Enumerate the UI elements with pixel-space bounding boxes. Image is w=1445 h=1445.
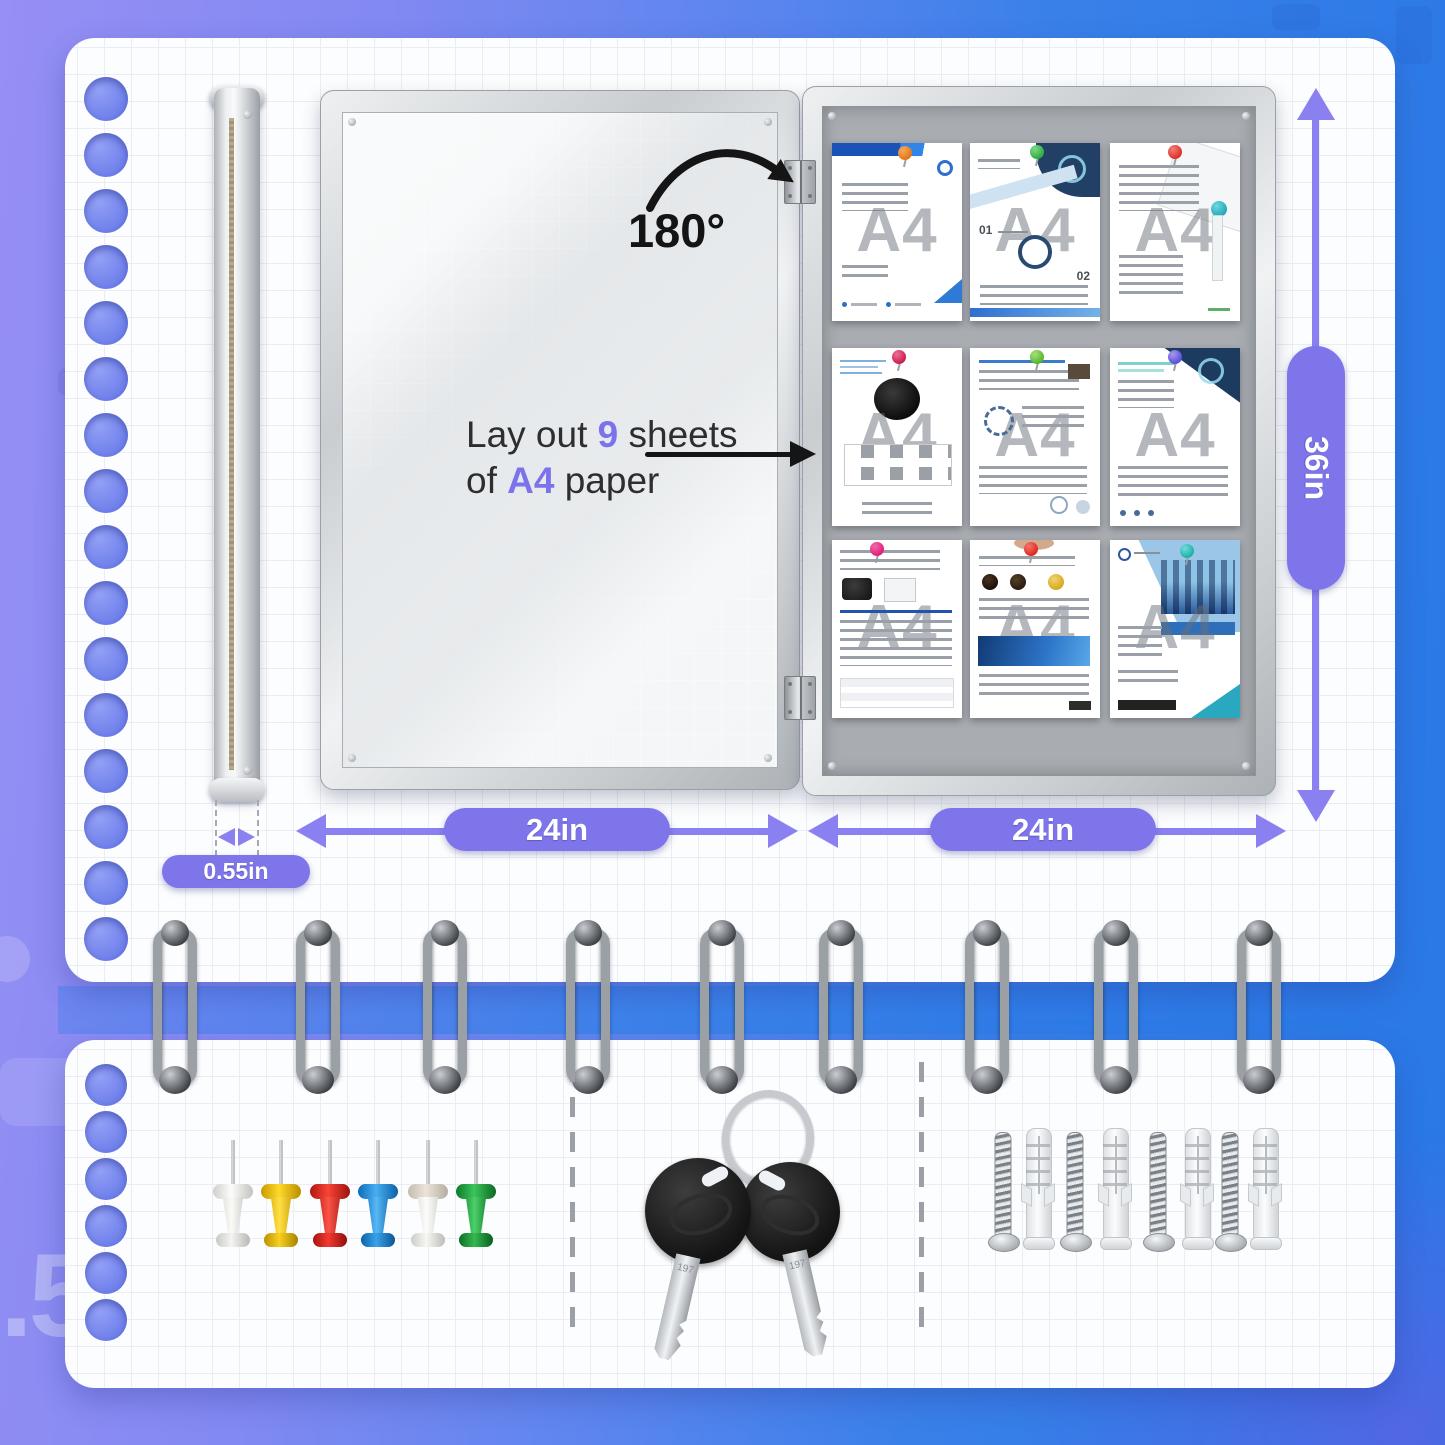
doc-decor xyxy=(1050,496,1068,514)
punched-hole xyxy=(84,189,128,233)
doc-decor xyxy=(840,372,882,374)
note-text: Lay out 9 sheets of A4 paper xyxy=(466,412,738,504)
hinge-icon xyxy=(784,676,816,720)
pushpin xyxy=(454,1140,498,1248)
doc-decor xyxy=(1118,700,1176,710)
wall-anchor xyxy=(1250,1128,1280,1254)
infographic-stage: .5 0.55in xyxy=(0,0,1445,1445)
doc-decor xyxy=(840,620,952,666)
doc-decor xyxy=(979,674,1089,696)
doc-decor xyxy=(840,610,952,613)
doc-decor xyxy=(1022,406,1084,432)
pushpin-icon xyxy=(1168,145,1182,167)
doc-decor xyxy=(978,159,1020,169)
doc-decor xyxy=(832,143,962,156)
height-arrow-icon xyxy=(1297,790,1335,822)
wall-anchor xyxy=(1182,1128,1212,1254)
doc-decor xyxy=(844,444,952,486)
backdrop-smudge xyxy=(1272,4,1320,30)
doc-decor xyxy=(842,302,847,307)
curved-arrow-icon xyxy=(640,136,795,216)
punched-hole xyxy=(84,413,128,457)
a4-sheet: A4 xyxy=(832,348,962,526)
doc-decor xyxy=(979,360,1065,363)
punched-hole xyxy=(84,581,128,625)
pushpin-icon xyxy=(1168,350,1182,372)
a4-sheet: A4 xyxy=(832,143,962,321)
doc-decor xyxy=(1069,701,1091,710)
a4-sheet: A4 xyxy=(970,540,1100,718)
doc-decor xyxy=(937,160,953,176)
punched-hole xyxy=(84,77,128,121)
a4-watermark: A4 xyxy=(1110,400,1240,471)
doc-decor xyxy=(1118,670,1178,688)
screw-icon xyxy=(1242,112,1250,120)
doc-decor xyxy=(1198,358,1224,384)
screw-icon xyxy=(348,118,356,126)
pushpin-icon xyxy=(1024,542,1038,564)
board-width-arrow-icon xyxy=(808,814,838,848)
pushpin xyxy=(211,1140,255,1248)
doc-step-label: 02 xyxy=(1077,269,1090,283)
doc-decor xyxy=(979,466,1087,494)
doc-decor xyxy=(1048,574,1064,590)
pushpin-icon xyxy=(898,146,912,168)
punched-hole xyxy=(84,133,128,177)
screw-icon xyxy=(764,118,772,126)
binder-ring xyxy=(153,928,197,1086)
doc-decor xyxy=(978,636,1090,666)
doc-decor xyxy=(998,231,1028,233)
binder-ring xyxy=(296,928,340,1086)
doc-decor xyxy=(1118,369,1164,372)
doc-decor xyxy=(982,574,998,590)
doc-decor xyxy=(980,285,1088,305)
doc-decor xyxy=(970,308,1100,317)
doc-decor xyxy=(1148,510,1154,516)
doc-decor xyxy=(840,360,886,362)
key-stamp: 197 xyxy=(676,1262,695,1276)
punched-hole xyxy=(85,1111,127,1153)
doc-decor xyxy=(1118,548,1131,561)
a4-sheet: A4 xyxy=(970,348,1100,526)
doc-decor xyxy=(1010,574,1026,590)
door-width-pill: 24in xyxy=(444,808,670,851)
binder-ring xyxy=(700,928,744,1086)
backdrop-smudge xyxy=(1396,6,1432,64)
pushpin xyxy=(259,1140,303,1248)
doc-decor xyxy=(1170,684,1240,718)
side-view-bottom-cap xyxy=(209,778,265,802)
doc-decor xyxy=(1018,235,1052,269)
key-head xyxy=(645,1158,751,1264)
doc-decor xyxy=(842,265,888,283)
doc-decor xyxy=(840,678,954,708)
pushpin-icon xyxy=(870,542,884,564)
punched-hole xyxy=(85,1158,127,1200)
screw-icon xyxy=(764,754,772,762)
divider-dashed xyxy=(570,1062,575,1334)
backdrop-smudge xyxy=(0,936,30,982)
binder-ring xyxy=(819,928,863,1086)
punched-hole xyxy=(84,245,128,289)
thickness-label: 0.55in xyxy=(203,858,268,885)
door-width-label: 24in xyxy=(526,812,588,848)
screw-icon xyxy=(828,762,836,770)
screw xyxy=(1058,1132,1092,1252)
screw-icon xyxy=(243,110,252,119)
doc-decor xyxy=(934,279,962,303)
pushpin-icon xyxy=(892,350,906,372)
punched-hole xyxy=(85,1064,127,1106)
binder-ring xyxy=(423,928,467,1086)
punched-hole xyxy=(85,1252,127,1294)
doc-decor xyxy=(851,303,877,306)
punched-hole xyxy=(84,693,128,737)
doc-decor xyxy=(840,366,878,368)
screw-icon xyxy=(243,766,252,775)
screw-icon xyxy=(1242,762,1250,770)
pushpin xyxy=(308,1140,352,1248)
screw xyxy=(986,1132,1020,1252)
height-label: 36in xyxy=(1298,436,1335,500)
height-arrow-icon xyxy=(1297,88,1335,120)
doc-decor xyxy=(984,406,1014,436)
doc-decor xyxy=(886,302,891,307)
key-stamp: 197 xyxy=(788,1258,807,1272)
wall-anchor xyxy=(1023,1128,1053,1254)
door-width-arrow-icon xyxy=(768,814,798,848)
screw xyxy=(1141,1132,1175,1252)
binder-ring xyxy=(965,928,1009,1086)
doc-decor xyxy=(1068,364,1090,379)
punched-hole xyxy=(84,469,128,513)
punched-hole xyxy=(85,1299,127,1341)
a4-sheet: A4 xyxy=(832,540,962,718)
binder-ring xyxy=(1237,928,1281,1086)
height-pill: 36in xyxy=(1287,346,1345,590)
doc-decor xyxy=(1134,552,1160,554)
pushpin xyxy=(356,1140,400,1248)
doc-decor xyxy=(1134,510,1140,516)
doc-decor xyxy=(1076,500,1090,514)
side-view-felt-edge xyxy=(229,118,234,770)
a4-watermark: A4 xyxy=(832,195,962,266)
punched-hole xyxy=(84,917,128,961)
thickness-arrow-icon xyxy=(238,828,255,846)
key-head xyxy=(740,1162,840,1262)
doc-decor xyxy=(1118,626,1162,660)
a4-sheet: A4 xyxy=(1110,348,1240,526)
a4-sheet: 01 02 A4 xyxy=(970,143,1100,321)
doc-decor xyxy=(862,502,932,514)
pushpin xyxy=(406,1140,450,1248)
door-width-arrow-icon xyxy=(296,814,326,848)
doc-decor xyxy=(979,598,1089,620)
punched-hole xyxy=(84,805,128,849)
pushpin-icon xyxy=(1030,145,1044,167)
doc-decor xyxy=(1120,510,1126,516)
screw-icon xyxy=(828,112,836,120)
board-width-label: 24in xyxy=(1012,812,1074,848)
screw-icon xyxy=(348,754,356,762)
doc-decor xyxy=(1118,466,1228,496)
note-arrowhead-icon xyxy=(790,441,816,467)
pushpin-icon xyxy=(1180,544,1194,566)
divider-dashed xyxy=(919,1062,924,1334)
doc-decor xyxy=(895,303,921,306)
thickness-pill: 0.55in xyxy=(162,855,310,888)
doc-step-label: 01 xyxy=(979,223,992,237)
doc-decor xyxy=(979,370,1079,390)
pushpin-icon xyxy=(1030,350,1044,372)
thickness-arrow-icon xyxy=(218,828,235,846)
board-width-arrow-icon xyxy=(1256,814,1286,848)
screw xyxy=(1213,1132,1247,1252)
punched-hole xyxy=(84,301,128,345)
punched-hole xyxy=(84,637,128,681)
punched-hole xyxy=(84,525,128,569)
punched-hole xyxy=(85,1205,127,1247)
wall-anchor xyxy=(1100,1128,1130,1254)
board-width-pill: 24in xyxy=(930,808,1156,851)
punched-hole xyxy=(84,357,128,401)
side-view-profile xyxy=(214,88,260,800)
note-arrow-icon xyxy=(645,452,795,457)
doc-decor xyxy=(1212,215,1223,281)
doc-decor xyxy=(1208,308,1230,311)
punched-hole xyxy=(84,861,128,905)
a4-sheet: A4 xyxy=(1110,540,1240,718)
binder-ring xyxy=(1094,928,1138,1086)
a4-sheet: A4 xyxy=(1110,143,1240,321)
punched-hole xyxy=(84,749,128,793)
doc-decor xyxy=(840,550,940,570)
